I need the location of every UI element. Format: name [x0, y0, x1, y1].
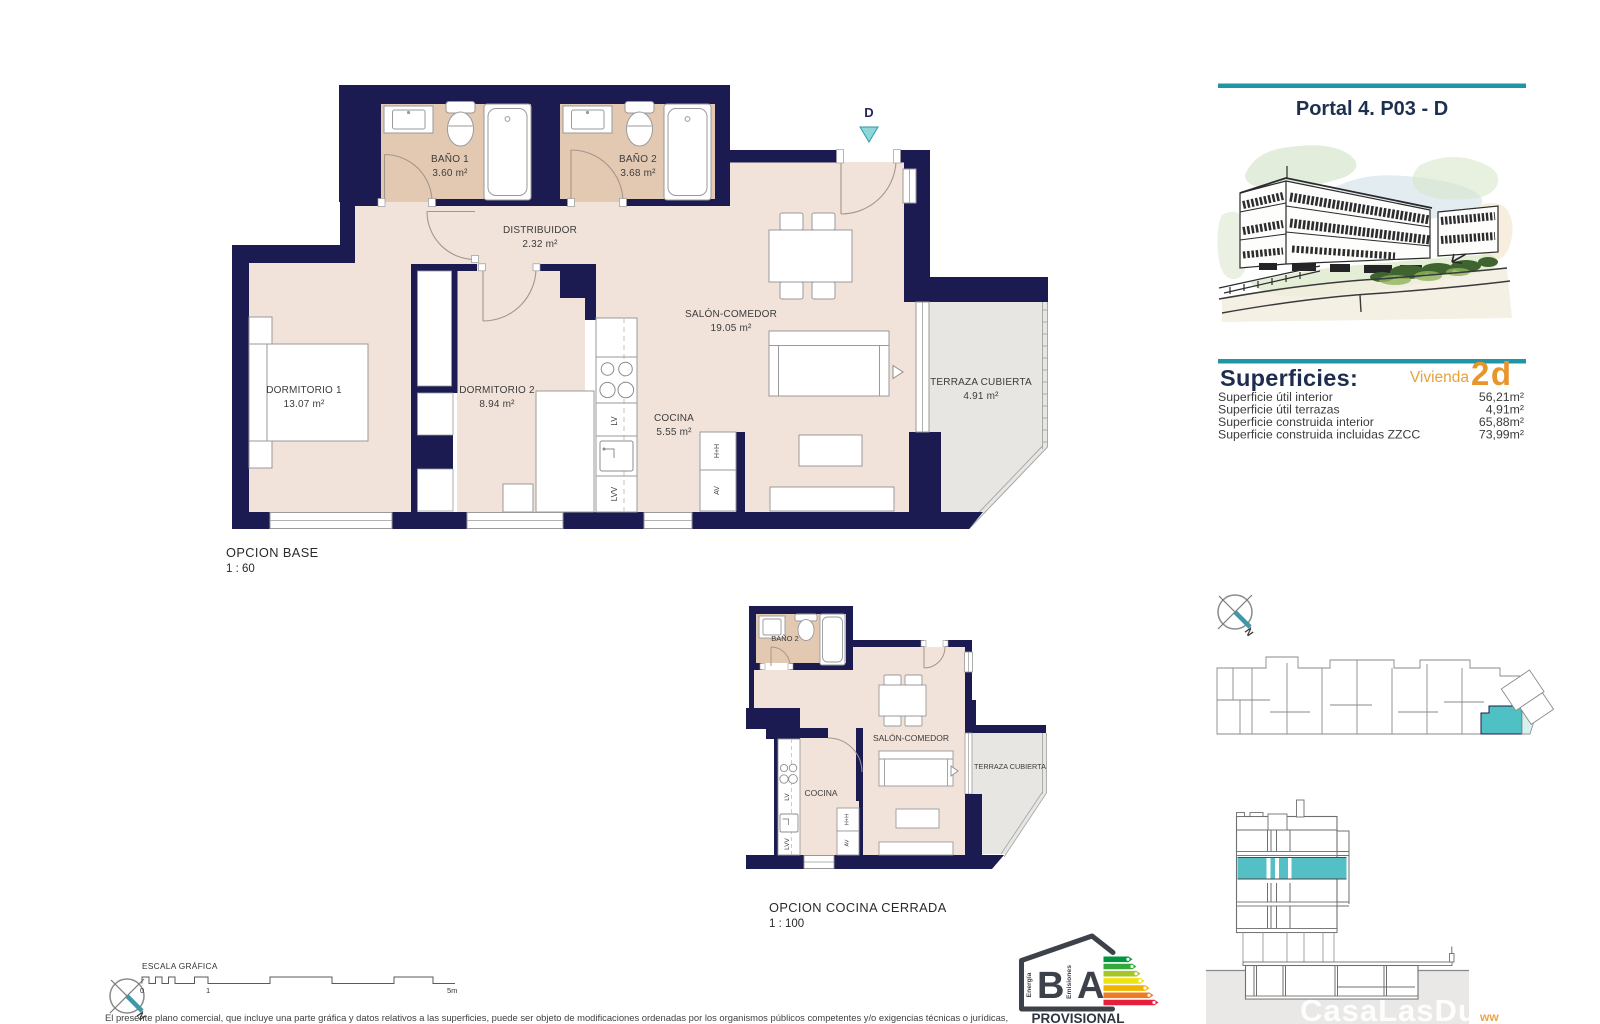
svg-text:1 : 60: 1 : 60 [226, 563, 255, 575]
svg-text:Superficies:: Superficies: [1220, 365, 1358, 391]
svg-text:LVV: LVV [610, 486, 619, 501]
svg-text:D: D [864, 105, 873, 120]
svg-text:Superficie construida incluida: Superficie construida incluidas ZZCC [1218, 428, 1420, 442]
svg-text:Energía: Energía [1026, 972, 1033, 997]
svg-text:TERRAZA CUBIERTA: TERRAZA CUBIERTA [974, 762, 1046, 771]
svg-text:LV: LV [610, 416, 619, 426]
svg-text:OPCION COCINA CERRADA: OPCION COCINA CERRADA [769, 900, 947, 915]
svg-text:2d: 2d [1471, 355, 1513, 392]
svg-text:BAÑO 1: BAÑO 1 [431, 152, 469, 165]
svg-text:DORMITORIO 1: DORMITORIO 1 [266, 385, 342, 396]
svg-text:ESCALA GRÁFICA: ESCALA GRÁFICA [142, 961, 218, 971]
svg-text:B: B [1037, 965, 1064, 1007]
svg-text:1: 1 [206, 986, 210, 995]
svg-text:3.60 m²: 3.60 m² [432, 168, 468, 179]
svg-text:8.94 m²: 8.94 m² [479, 399, 515, 410]
svg-text:5m: 5m [447, 986, 457, 995]
svg-text:5.55 m²: 5.55 m² [656, 427, 692, 438]
svg-text:ww: ww [1479, 1010, 1499, 1024]
svg-text:AV: AV [845, 839, 851, 846]
svg-text:CasaLasDun: CasaLasDun [1300, 993, 1498, 1024]
svg-text:AV: AV [714, 486, 721, 495]
svg-text:0: 0 [140, 986, 144, 995]
svg-text:H+H: H+H [714, 444, 721, 458]
svg-text:3.68 m²: 3.68 m² [620, 168, 656, 179]
svg-text:LV: LV [784, 793, 791, 801]
svg-text:H+H: H+H [845, 814, 851, 825]
svg-text:4.91 m²: 4.91 m² [963, 391, 999, 402]
svg-text:Portal 4. P03 - D: Portal 4. P03 - D [1296, 98, 1448, 120]
svg-text:COCINA: COCINA [654, 413, 694, 424]
svg-text:Vivienda: Vivienda [1410, 369, 1470, 386]
svg-text:1 : 100: 1 : 100 [769, 918, 804, 930]
svg-text:73,99m²: 73,99m² [1479, 428, 1524, 442]
svg-text:Emisiones: Emisiones [1066, 965, 1073, 999]
svg-text:OPCION BASE: OPCION BASE [226, 545, 319, 560]
svg-text:BAÑO 2: BAÑO 2 [771, 634, 799, 643]
svg-text:PROVISIONAL: PROVISIONAL [1031, 1011, 1124, 1024]
svg-text:13.07 m²: 13.07 m² [283, 399, 325, 410]
svg-text:TERRAZA CUBIERTA: TERRAZA CUBIERTA [930, 377, 1032, 388]
svg-text:SALÓN-COMEDOR: SALÓN-COMEDOR [873, 733, 949, 743]
svg-text:19.05 m²: 19.05 m² [710, 323, 752, 334]
svg-text:A: A [1077, 965, 1104, 1007]
svg-text:COCINA: COCINA [804, 788, 837, 798]
svg-text:BAÑO 2: BAÑO 2 [619, 152, 657, 165]
svg-text:DORMITORIO 2: DORMITORIO 2 [459, 385, 535, 396]
svg-text:El presente plano comercial, q: El presente plano comercial, que incluye… [105, 1012, 1008, 1023]
svg-text:2.32 m²: 2.32 m² [522, 239, 558, 250]
svg-text:DISTRIBUIDOR: DISTRIBUIDOR [503, 225, 577, 236]
svg-text:SALÓN-COMEDOR: SALÓN-COMEDOR [685, 307, 777, 320]
svg-text:LVV: LVV [784, 837, 791, 849]
